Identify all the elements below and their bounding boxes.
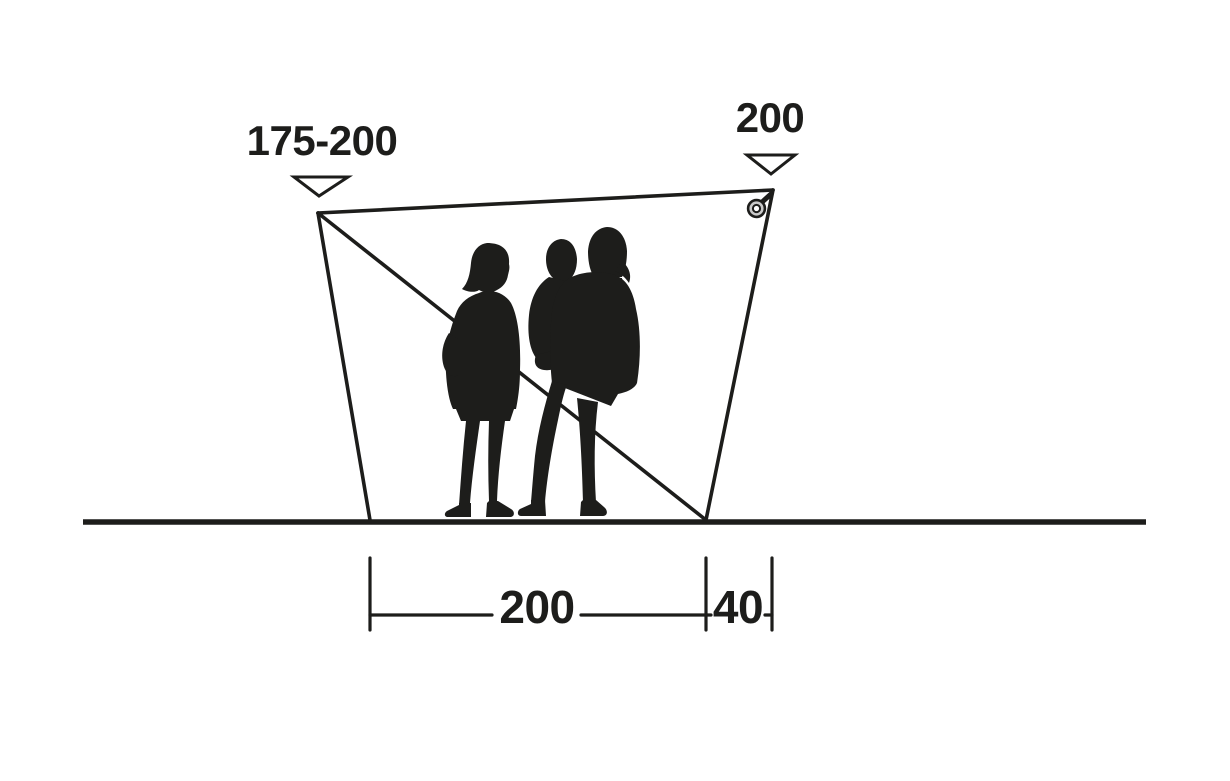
- peak-right-triangle-marker: [747, 155, 795, 174]
- diagram-canvas: 175-200 200 200 40: [0, 0, 1230, 781]
- adult-left-silhouette: [442, 243, 520, 517]
- tarp-left-edge: [318, 213, 370, 520]
- adult-left-arm: [442, 333, 459, 376]
- peak-left-height-label: 175-200: [247, 120, 398, 162]
- tarp-right-edge: [706, 190, 773, 520]
- tarp-top-edge: [318, 190, 773, 213]
- adult-right-back-foot: [580, 500, 607, 516]
- base-overhang-label: 40: [713, 584, 763, 630]
- adult-left-front-leg: [488, 421, 505, 501]
- adult-left-back-leg: [459, 421, 480, 505]
- adult-right-back-leg: [577, 398, 598, 502]
- adult-left-head: [462, 243, 509, 292]
- child-head: [546, 239, 577, 280]
- peak-right-height-label: 200: [736, 97, 805, 139]
- adult-left-back-foot: [445, 503, 471, 517]
- peak-left-triangle-marker: [294, 177, 348, 196]
- grommet-inner-hole: [753, 205, 760, 212]
- adult-left-skirt: [456, 409, 514, 421]
- base-span-label: 200: [499, 584, 574, 630]
- diagram-svg: [0, 0, 1230, 781]
- adult-right-front-foot: [518, 500, 546, 516]
- adult-right-front-leg: [531, 381, 567, 502]
- adult-with-child-silhouette: [518, 227, 640, 516]
- adult-left-front-foot: [486, 501, 514, 517]
